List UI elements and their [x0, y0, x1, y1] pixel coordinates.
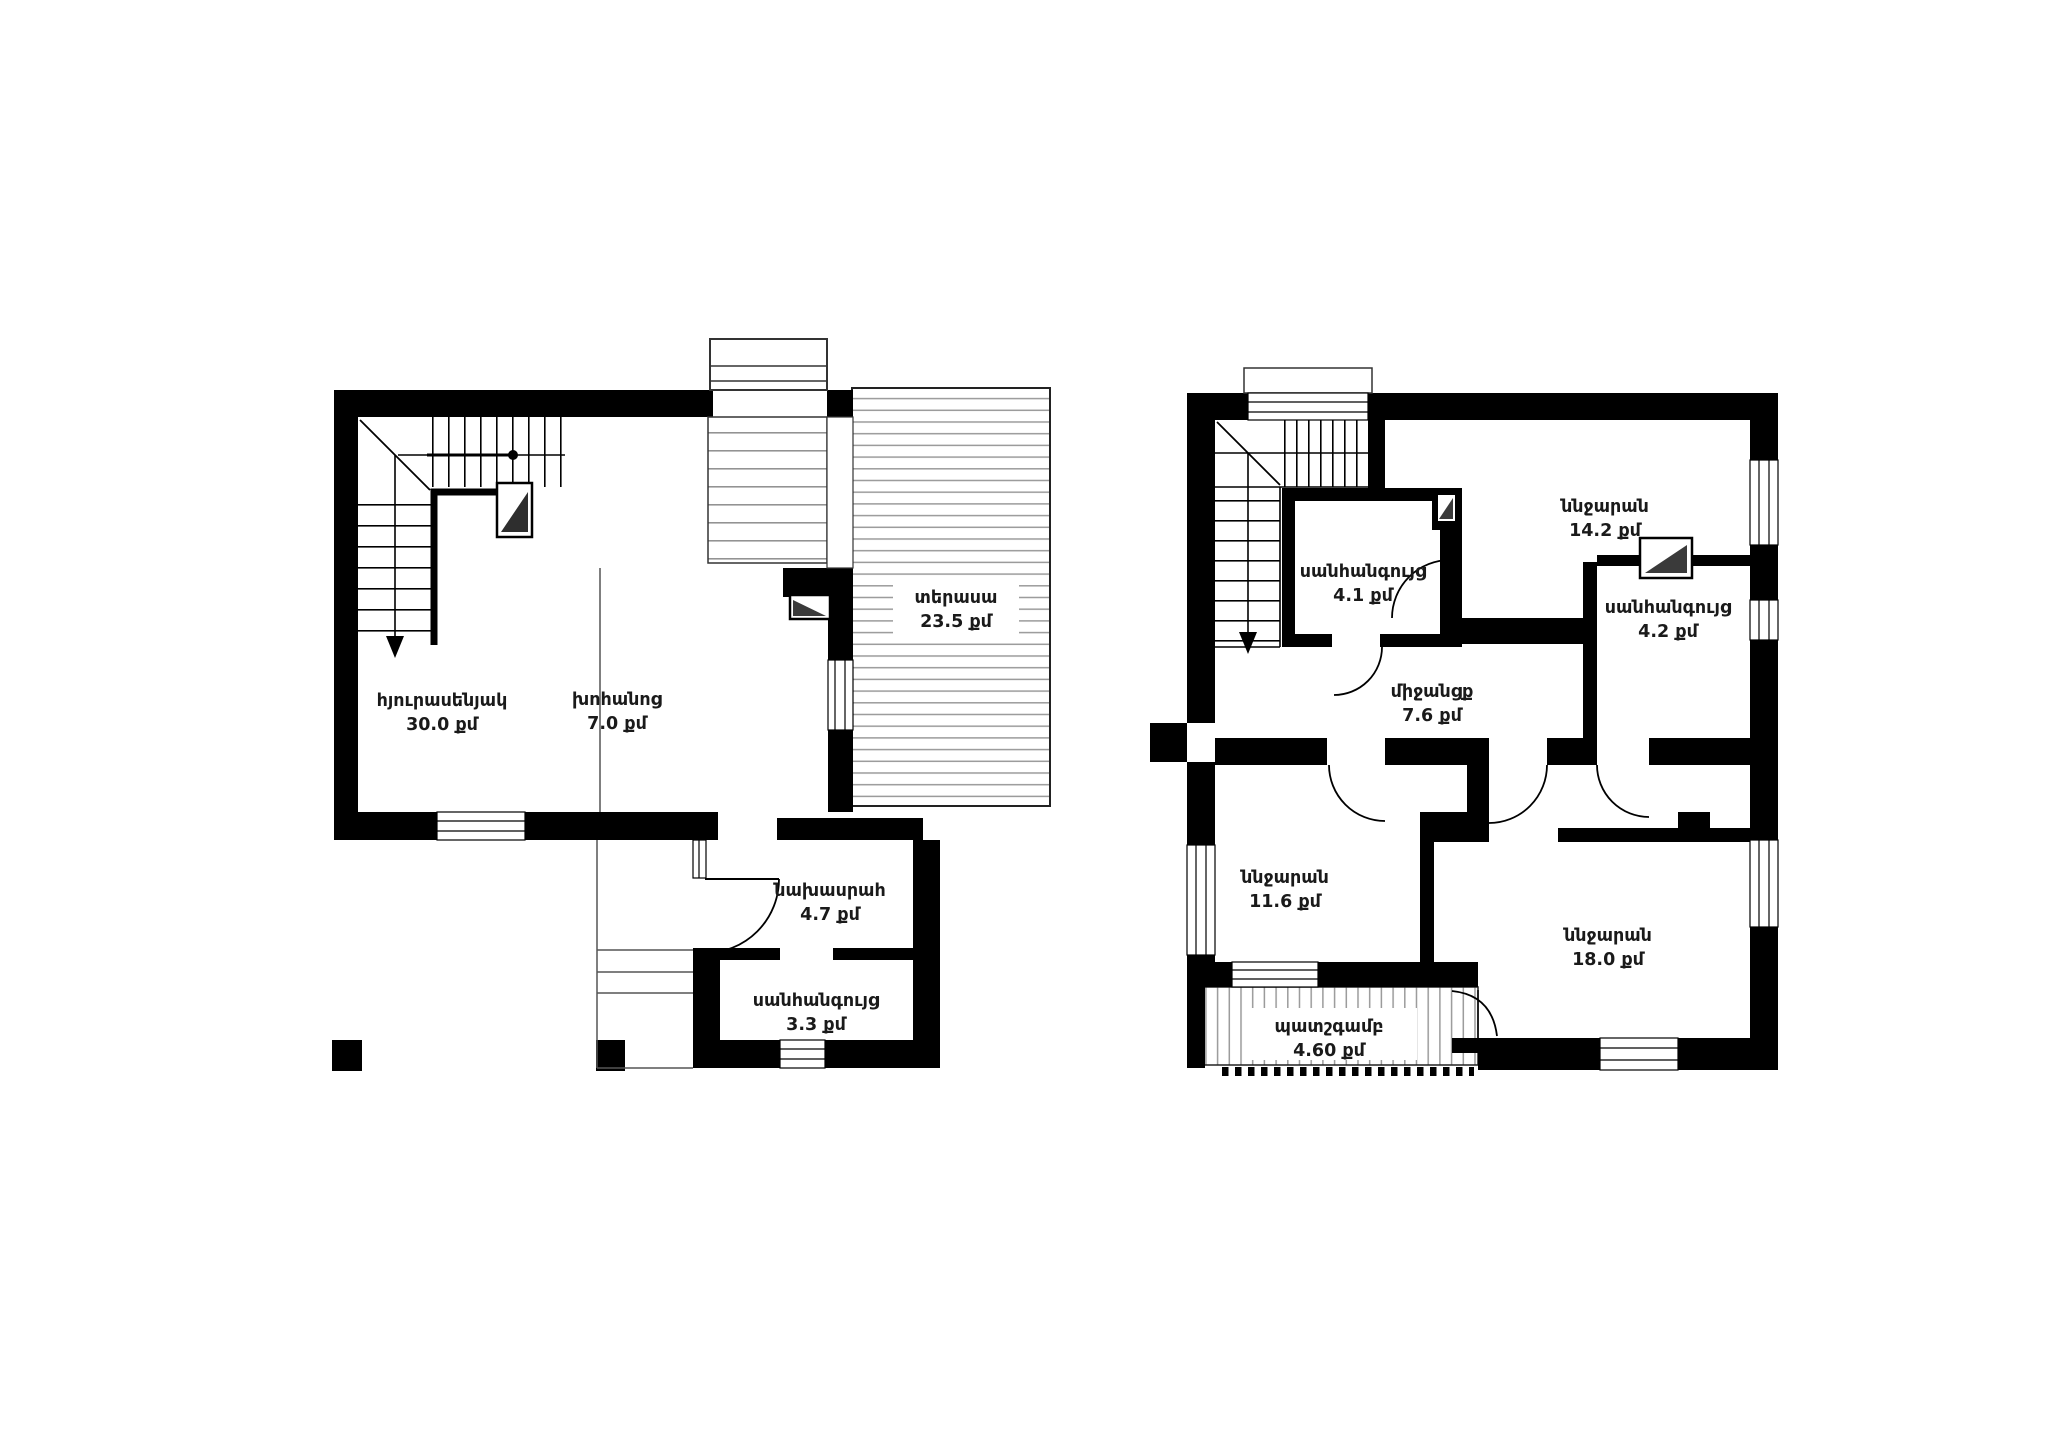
wall-segment [1187, 393, 1248, 420]
room-label-vestibule-area: 4.7 քմ [800, 905, 861, 925]
windows-second-floor [1187, 368, 1778, 1070]
wall-segment [1420, 842, 1434, 962]
plan-geometry [1187, 845, 1215, 955]
wall-segment [525, 812, 718, 840]
wall-segment [1678, 1038, 1778, 1070]
wall-segment [827, 390, 853, 417]
plan-geometry [437, 812, 525, 840]
wall-segment [828, 597, 853, 660]
balcony-edge-teeth [1218, 1067, 1474, 1076]
room-label-bedroom1-area: 14.2 քմ [1569, 521, 1643, 541]
wall-segment [1750, 640, 1778, 840]
plan-geometry [1600, 1038, 1678, 1070]
entrance-sidelight [693, 840, 706, 878]
window [1750, 840, 1778, 927]
wall-segment [1547, 738, 1583, 765]
plan-geometry [828, 660, 853, 730]
wall-segment [1583, 562, 1597, 765]
window [828, 660, 853, 730]
room-label-vestibule-name: նախասրահ [772, 881, 885, 901]
wall-segment [1750, 393, 1778, 460]
stair-treads [708, 417, 827, 563]
room-label-terrace-area: 23.5 քմ [920, 612, 994, 632]
wall-segment [1368, 420, 1385, 488]
wall-segment [828, 730, 853, 812]
wall-segment [1187, 987, 1205, 1068]
bedroom2-door-arc [1329, 765, 1385, 821]
wall-segment [1187, 762, 1215, 845]
room-label-bedroom3-area: 18.0 քմ [1572, 950, 1646, 970]
wall-segment [1558, 828, 1750, 842]
room-label-kitchen-area: 7.0 քմ [587, 714, 648, 734]
wall-segment [1385, 738, 1489, 765]
room-label-balcony-area: 4.60 քմ [1293, 1041, 1367, 1061]
room-label-bedroom2-name: ննջարան [1239, 868, 1329, 888]
room-label-bedroom3-name: ննջարան [1562, 926, 1652, 946]
porch-column [596, 1040, 625, 1071]
stair-down-arrow [386, 636, 404, 658]
first-floor-plan: հյուրասենյակ 30.0 քմ խոհանոց 7.0 քմ տերա… [332, 339, 1050, 1071]
window [780, 1040, 825, 1068]
main-stair [358, 417, 565, 658]
wall-segment [1187, 962, 1232, 987]
wall-segment [718, 1040, 780, 1068]
wall-segment [334, 390, 358, 840]
plan-geometry [1248, 393, 1368, 420]
wall-segment [1678, 812, 1710, 842]
wall-segment [1282, 488, 1445, 501]
room-label-wc3-area: 4.2 քմ [1638, 622, 1699, 642]
plan-geometry [1244, 368, 1372, 393]
wall-segment [1318, 962, 1478, 987]
stair-upper-strip [827, 417, 853, 568]
wall-segment [1478, 1038, 1600, 1070]
porch-column [332, 1040, 362, 1071]
floor-plan-drawing: հյուրասենյակ 30.0 քմ խոհանոց 7.0 քմ տերա… [0, 0, 2048, 1447]
window [1750, 600, 1778, 640]
wall-segment [1187, 393, 1215, 723]
wall-segment [913, 840, 940, 1068]
room-label-bedroom2-area: 11.6 քմ [1249, 892, 1323, 912]
plan-geometry [1750, 600, 1778, 640]
plan-geometry [1750, 460, 1778, 545]
wall-segment [1467, 765, 1489, 812]
room-label-wc1-name: սանհանգույց [753, 991, 880, 1011]
room-label-wc1-area: 3.3 քմ [786, 1015, 847, 1035]
wall-segment [1450, 618, 1583, 644]
plan-geometry [1232, 962, 1318, 987]
wall-segment [1368, 393, 1777, 420]
wall-segment [334, 390, 713, 417]
second-floor-plan: ննջարան 14.2 քմ սանհանգույց 4.1 քմ միջան… [1150, 368, 1778, 1076]
wall-segment [1750, 545, 1778, 600]
room-label-wc3-name: սանհանգույց [1605, 598, 1732, 618]
window [1244, 368, 1372, 420]
room-label-living-name: հյուրասենյակ [377, 691, 508, 711]
bedroom-chimney [1640, 538, 1692, 578]
room-label-wc2-name: սանհանգույց [1300, 562, 1427, 582]
kitchen-chimney [790, 595, 830, 619]
window [1750, 460, 1778, 545]
wall-segment [833, 948, 913, 960]
wall-segment [1282, 634, 1332, 647]
kitchen-stair [708, 339, 853, 568]
bathroom2-door-arc [1597, 765, 1649, 817]
bedroom3-door-arc [1489, 765, 1547, 823]
window [1232, 962, 1318, 987]
wall-segment [783, 568, 853, 597]
room-label-terrace-name: տերասա [915, 588, 998, 608]
entrance-door [705, 879, 779, 953]
wall-segment [1420, 812, 1489, 842]
room-label-corridor-area: 7.6 քմ [1402, 706, 1463, 726]
room-label-balcony-name: պատշգամբ [1275, 1017, 1384, 1037]
stair-landing [710, 339, 827, 390]
wall-segment [1452, 1038, 1478, 1053]
wall-segment [1215, 738, 1327, 765]
wall-segment [334, 812, 437, 840]
wall-segment [825, 1040, 940, 1068]
wall-pier [1150, 723, 1187, 762]
floor-plan-sheet: հյուրասենյակ 30.0 քմ խոհանոց 7.0 քմ տերա… [0, 0, 2048, 1447]
wall-segment [1380, 634, 1440, 647]
room-label-living-area: 30.0 քմ [406, 715, 480, 735]
room-label-corridor-name: միջանցք [1391, 682, 1474, 702]
plan-geometry [780, 1040, 825, 1068]
window [1600, 1038, 1678, 1070]
wall-segment [1649, 738, 1750, 765]
stair-inner-wall [434, 492, 497, 645]
plan-geometry [1750, 840, 1778, 927]
room-label-wc2-area: 4.1 քմ [1333, 586, 1394, 606]
door-swing-arc [705, 879, 779, 953]
bathroom-chimney [1437, 494, 1456, 522]
wall-segment [1282, 488, 1295, 647]
window [437, 812, 525, 840]
wall-segment [777, 818, 923, 840]
bathroom1-door-arc [1334, 647, 1382, 695]
room-label-kitchen-name: խոհանոց [572, 690, 663, 710]
wall-segment [693, 948, 720, 1068]
window [1187, 845, 1215, 955]
room-label-bedroom1-name: ննջարան [1559, 497, 1649, 517]
stair-newel [508, 450, 518, 460]
stair-treads [425, 417, 565, 487]
